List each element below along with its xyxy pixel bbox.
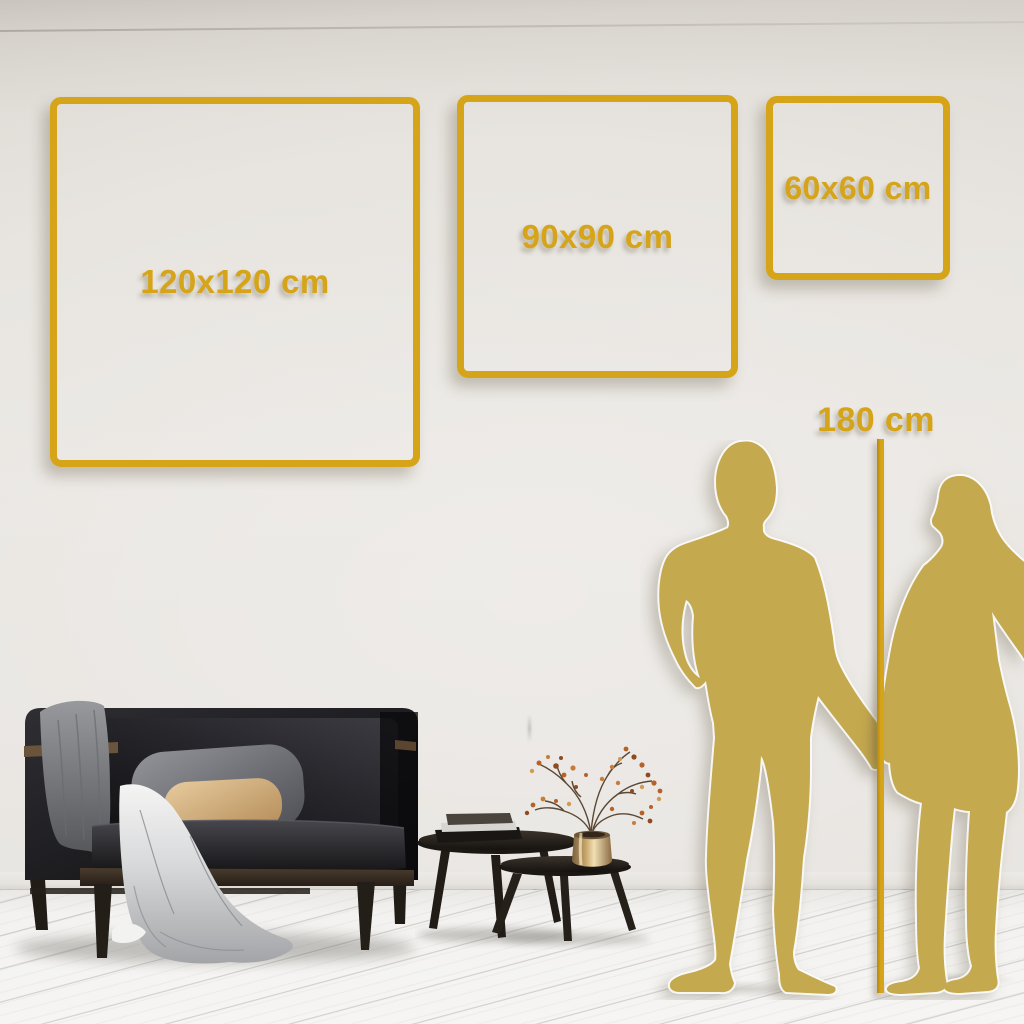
table-floor-shadow bbox=[500, 933, 650, 945]
book-top bbox=[446, 813, 513, 825]
size-frame-120x120: 120x120 cm bbox=[50, 97, 420, 467]
table-leg bbox=[610, 871, 636, 931]
size-frame-90x90: 90x90 cm bbox=[457, 95, 738, 378]
vase-opening bbox=[579, 832, 605, 838]
size-guide-scene: 120x120 cm 90x90 cm 60x60 cm bbox=[0, 0, 1024, 1024]
woman-silhouette bbox=[879, 476, 1024, 994]
vase-highlight bbox=[580, 833, 581, 865]
dried-branch bbox=[535, 752, 652, 833]
size-label-120x120: 120x120 cm bbox=[140, 263, 329, 301]
size-label-60x60: 60x60 cm bbox=[784, 170, 931, 207]
height-marker-label: 180 cm bbox=[796, 401, 956, 440]
size-label-90x90: 90x90 cm bbox=[522, 218, 674, 256]
man-silhouette bbox=[659, 441, 885, 994]
size-frame-60x60: 60x60 cm bbox=[766, 96, 950, 280]
couple-silhouette bbox=[640, 440, 1024, 1000]
height-marker-line bbox=[877, 439, 884, 993]
table-leg bbox=[560, 876, 572, 941]
sofa bbox=[0, 690, 430, 990]
table-leg bbox=[429, 851, 450, 929]
